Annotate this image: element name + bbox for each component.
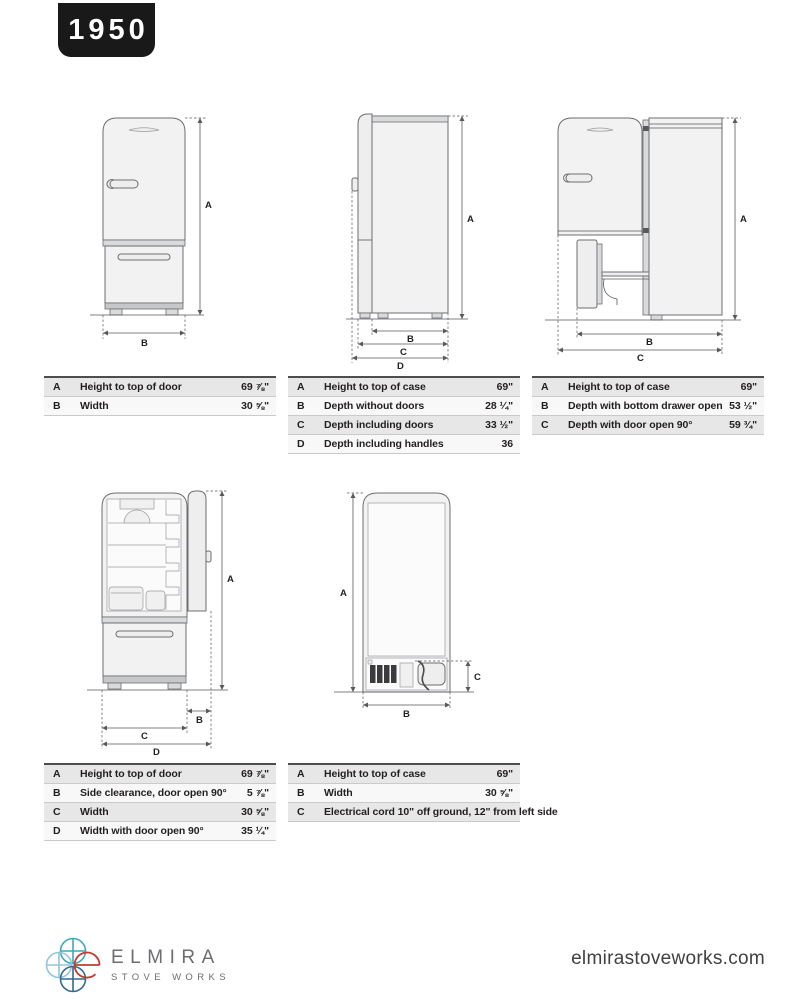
base-band xyxy=(103,676,186,683)
dim-value: 33 ½" xyxy=(485,419,513,431)
spec-row: B Side clearance, door open 90° 5 ⅞" xyxy=(44,784,276,803)
logo-name: ELMIRA xyxy=(111,947,230,969)
dim-key: B xyxy=(541,400,568,412)
drawer-handle xyxy=(116,631,173,637)
divider-band xyxy=(103,240,185,246)
dim-key: A xyxy=(53,381,80,393)
open-drawer xyxy=(577,240,649,308)
dim-label: Width xyxy=(324,787,485,799)
dim-value: 30 ⅝" xyxy=(241,806,269,818)
fridge-upper-door xyxy=(103,118,185,240)
case-top-band xyxy=(372,116,448,122)
dim-value: 5 ⅞" xyxy=(247,787,269,799)
dim-label-b: B xyxy=(646,337,653,348)
dim-key: A xyxy=(541,381,568,393)
spec-table-side-view: A Height to top of case 69" B Depth with… xyxy=(288,376,520,454)
dim-label-d: D xyxy=(397,361,404,372)
dim-label: Depth without doors xyxy=(324,400,485,412)
dim-value: 69 ⅞" xyxy=(241,381,269,393)
dim-value: 69 ⅞" xyxy=(241,768,269,780)
spec-row: C Width 30 ⅝" xyxy=(44,803,276,822)
dim-label-d: D xyxy=(153,747,160,757)
dim-label-c: C xyxy=(474,672,481,683)
door-bottom xyxy=(360,313,370,318)
figure-side-view: A B C D xyxy=(332,98,522,372)
spec-row: A Height to top of case 69" xyxy=(532,378,764,397)
foot-back xyxy=(432,313,442,318)
dim-label-a: A xyxy=(227,574,234,585)
dim-value: 28 ¼" xyxy=(485,400,513,412)
fridge-open xyxy=(545,118,741,320)
spec-row: B Width 30 ⅝" xyxy=(44,397,276,416)
crisper-left xyxy=(109,587,143,610)
website-url: elmirastoveworks.com xyxy=(571,948,765,970)
dim-label: Depth including doors xyxy=(324,419,485,431)
crisper-right xyxy=(146,591,165,610)
figure-front-view: A B xyxy=(42,103,272,365)
dim-key: C xyxy=(541,419,568,431)
dim-key: D xyxy=(297,438,324,450)
dim-key: B xyxy=(297,787,324,799)
dim-label-c: C xyxy=(637,353,644,362)
dim-label: Height to top of door xyxy=(80,381,241,393)
dim-label: Width xyxy=(80,806,241,818)
side-view-drawing: A B C D xyxy=(332,98,522,372)
spec-row: C Depth including doors 33 ½" xyxy=(288,416,520,435)
drawer-support xyxy=(604,279,617,305)
figure-front-door-open: A B C D xyxy=(82,483,282,757)
dim-label-b: B xyxy=(407,334,414,345)
spec-row: A Height to top of case 69" xyxy=(288,765,520,784)
fridge-front xyxy=(90,118,204,315)
fridge-interior xyxy=(87,491,228,690)
logo-text: ELMIRA STOVE WORKS xyxy=(111,947,230,983)
dim-label-b: B xyxy=(403,709,410,720)
hinge-mid xyxy=(643,228,649,233)
dim-key: B xyxy=(53,400,80,412)
spec-row: B Depth without doors 28 ¼" xyxy=(288,397,520,416)
case-foot xyxy=(651,315,662,320)
dim-label: Width xyxy=(80,400,241,412)
drawer-handle xyxy=(118,254,170,260)
dim-label-a: A xyxy=(740,214,747,225)
dim-value: 36 xyxy=(502,438,513,450)
dim-key: C xyxy=(297,806,324,818)
fridge-side xyxy=(346,114,468,319)
side-open-drawing: A B C xyxy=(535,100,765,362)
company-logo: ELMIRA STOVE WORKS xyxy=(44,936,230,994)
dim-key: C xyxy=(297,419,324,431)
spec-row: B Width 30 ⅝" xyxy=(288,784,520,803)
dim-label: Height to top of case xyxy=(324,768,497,780)
drawer-front-inner xyxy=(597,244,602,304)
spec-row: D Depth including handles 36 xyxy=(288,435,520,454)
flower-logo-icon xyxy=(44,936,102,994)
dim-label-a: A xyxy=(205,200,212,211)
logo-petal-top xyxy=(61,939,86,964)
back-view-drawing: A B C xyxy=(322,483,497,733)
spec-row: A Height to top of case 69" xyxy=(288,378,520,397)
dim-label-b: B xyxy=(196,715,203,726)
dim-label: Height to top of door xyxy=(80,768,241,780)
dim-label-c: C xyxy=(400,347,407,358)
spec-row: B Depth with bottom drawer open 53 ½" xyxy=(532,397,764,416)
spec-row: A Height to top of door 69 ⅞" xyxy=(44,765,276,784)
fridge-back xyxy=(334,493,474,692)
spec-table-open-view: A Height to top of case 69" B Depth with… xyxy=(532,376,764,435)
drawer-front-panel xyxy=(577,240,597,308)
dim-label: Side clearance, door open 90° xyxy=(80,787,247,799)
front-open-drawing: A B C D xyxy=(82,483,282,757)
dim-value: 69" xyxy=(497,381,513,393)
spec-table-back-view: A Height to top of case 69" B Width 30 ⅝… xyxy=(288,763,520,822)
model-number: 1950 xyxy=(64,14,149,47)
foot-right xyxy=(166,309,178,315)
spec-row: D Width with door open 90° 35 ¼" xyxy=(44,822,276,841)
dim-key: A xyxy=(297,381,324,393)
dim-key: A xyxy=(297,768,324,780)
dim-value: 69" xyxy=(741,381,757,393)
foot-left xyxy=(110,309,122,315)
dim-label-a: A xyxy=(340,588,347,599)
hinge-strip xyxy=(643,120,649,315)
door-handle-edge xyxy=(206,551,211,562)
hinge-top xyxy=(643,126,649,131)
figure-side-view-open: A B C xyxy=(535,100,765,362)
spec-row: C Electrical cord 10" off ground, 12" fr… xyxy=(288,803,520,822)
dim-value: 69" xyxy=(497,768,513,780)
figure-back-view: A B C xyxy=(322,483,497,733)
fridge-case xyxy=(372,116,448,313)
spec-sheet-page: { "page": { "model": "1950", "website": … xyxy=(0,0,800,1006)
handle-side xyxy=(352,178,358,191)
dim-key: B xyxy=(297,400,324,412)
model-badge: 1950 xyxy=(58,3,155,57)
front-view-drawing: A B xyxy=(42,103,272,365)
dim-label: Depth with bottom drawer open xyxy=(568,400,729,412)
dim-label: Height to top of case xyxy=(568,381,741,393)
foot-right xyxy=(168,683,181,689)
dim-label: Electrical cord 10" off ground, 12" from… xyxy=(324,806,558,818)
bay-clip xyxy=(368,660,372,664)
dim-label-c: C xyxy=(141,731,148,742)
divider-band xyxy=(102,617,187,623)
dim-label: Depth including handles xyxy=(324,438,502,450)
dim-value: 35 ¼" xyxy=(241,825,269,837)
door-handle xyxy=(564,174,593,182)
spec-row: C Depth with door open 90° 59 ¾" xyxy=(532,416,764,435)
dim-label-b: B xyxy=(141,338,148,349)
logo-letter-e xyxy=(75,953,100,978)
dim-key: C xyxy=(53,806,80,818)
logo-petal-bottom xyxy=(61,967,86,992)
spec-row: A Height to top of door 69 ⅞" xyxy=(44,378,276,397)
dim-label: Depth with door open 90° xyxy=(568,419,729,431)
spec-table-front-view: A Height to top of door 69 ⅞" B Width 30… xyxy=(44,376,276,416)
dim-value: 59 ¾" xyxy=(729,419,757,431)
base-band xyxy=(105,303,183,309)
logo-subname: STOVE WORKS xyxy=(111,972,230,983)
open-door-edge xyxy=(188,491,206,611)
dim-value: 30 ⅝" xyxy=(241,400,269,412)
fridge-case xyxy=(649,118,722,315)
drawer-rail xyxy=(602,272,649,276)
dim-label: Width with door open 90° xyxy=(80,825,241,837)
spec-table-door-open: A Height to top of door 69 ⅞" B Side cle… xyxy=(44,763,276,841)
back-panel xyxy=(368,503,445,656)
foot-left xyxy=(108,683,121,689)
dim-value: 30 ⅝" xyxy=(485,787,513,799)
dim-value: 53 ½" xyxy=(729,400,757,412)
fan-housing xyxy=(120,499,154,509)
dim-label-a: A xyxy=(467,214,474,225)
bay-divider xyxy=(400,663,413,687)
dim-label: Height to top of case xyxy=(324,381,497,393)
logo-petal-left xyxy=(47,953,72,978)
door-side xyxy=(358,114,372,313)
dim-key: B xyxy=(53,787,80,799)
door-handle xyxy=(107,180,138,189)
foot-front xyxy=(378,313,388,318)
dim-key: A xyxy=(53,768,80,780)
dim-key: D xyxy=(53,825,80,837)
